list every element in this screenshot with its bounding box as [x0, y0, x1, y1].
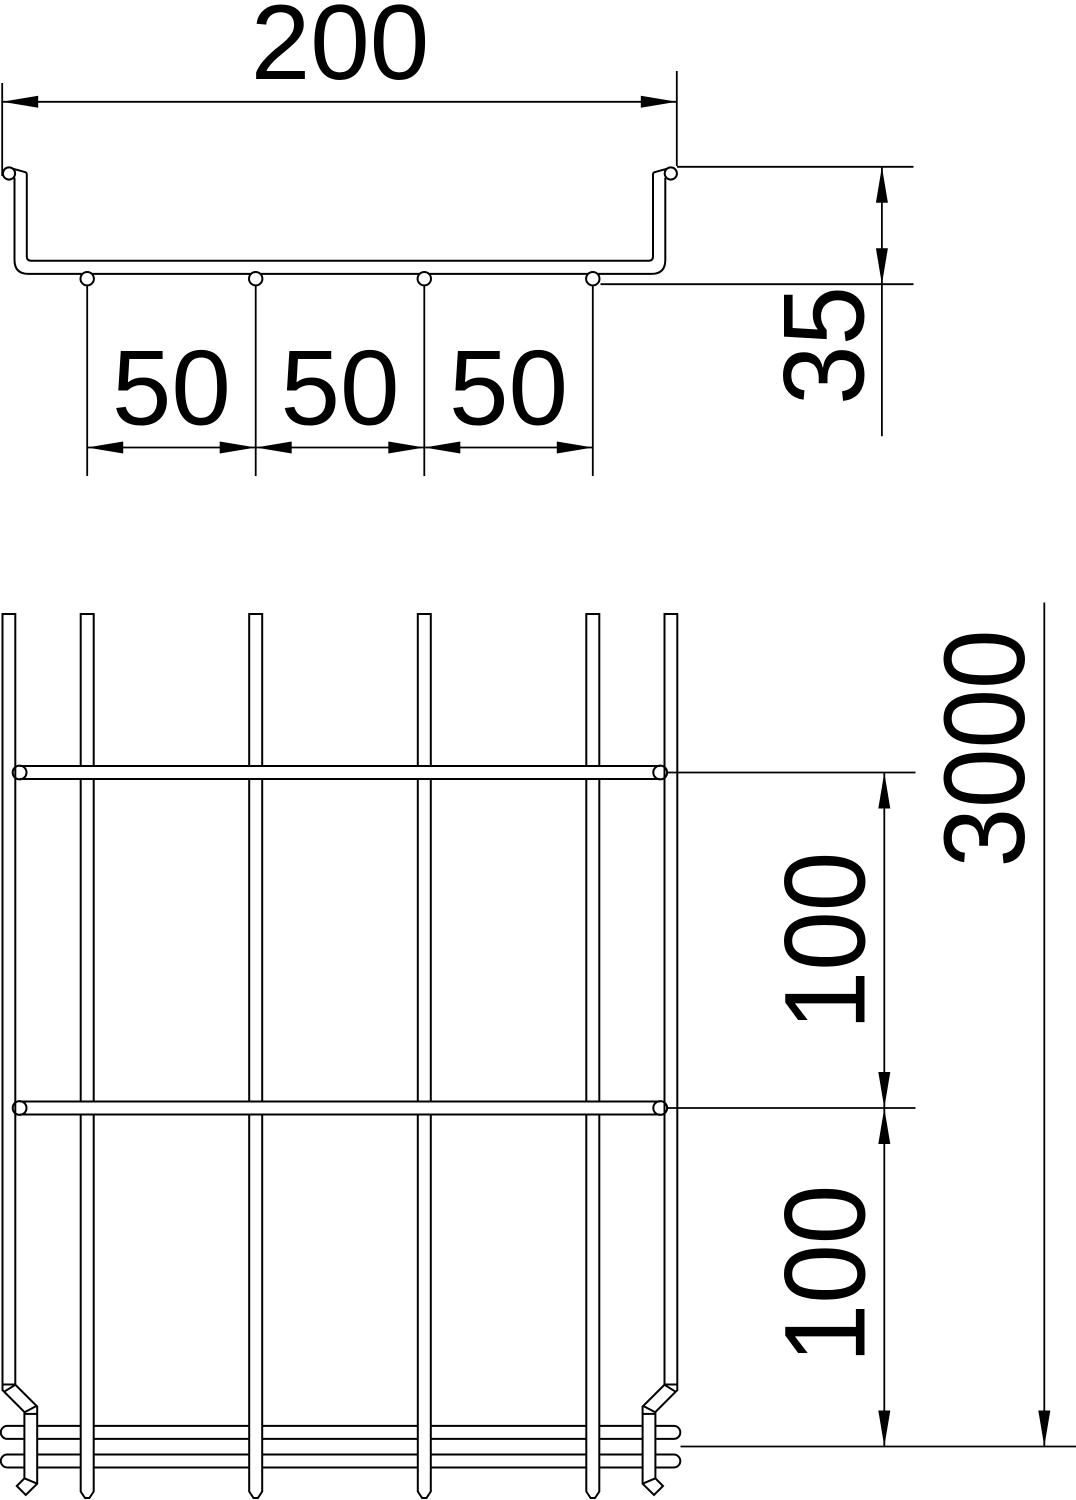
svg-text:3000: 3000	[919, 629, 1049, 867]
svg-text:200: 200	[251, 0, 430, 102]
svg-text:50: 50	[112, 327, 231, 447]
svg-text:50: 50	[449, 327, 568, 447]
svg-text:50: 50	[280, 327, 399, 447]
svg-text:35: 35	[759, 286, 889, 405]
svg-text:100: 100	[760, 1185, 890, 1364]
svg-text:100: 100	[760, 852, 890, 1031]
